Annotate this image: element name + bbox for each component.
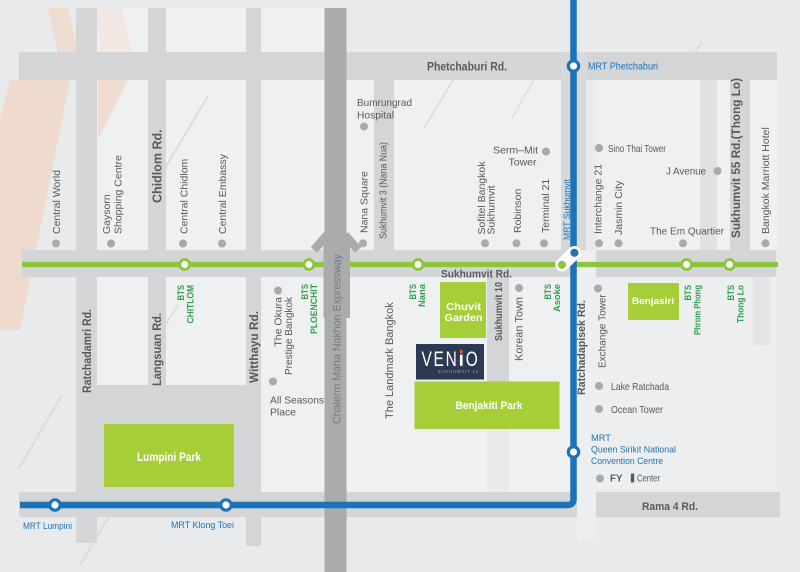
svg-text:Central Embassy: Central Embassy bbox=[217, 153, 229, 234]
svg-text:Jasmin City: Jasmin City bbox=[613, 180, 625, 235]
svg-text:Phrom Phong: Phrom Phong bbox=[693, 285, 703, 335]
svg-text:Tower: Tower bbox=[509, 157, 537, 169]
svg-text:Lake Ratchada: Lake Ratchada bbox=[611, 381, 669, 393]
svg-text:Nana Square: Nana Square bbox=[358, 171, 370, 233]
svg-text:Sino Thai Tower: Sino Thai Tower bbox=[608, 143, 666, 155]
svg-text:Sukhumvit 3 (Nana Nua): Sukhumvit 3 (Nana Nua) bbox=[378, 142, 390, 239]
svg-text:Ratchadamri Rd.: Ratchadamri Rd. bbox=[82, 309, 94, 393]
svg-text:MRT: MRT bbox=[591, 433, 611, 443]
svg-text:Prestige Bangkok: Prestige Bangkok bbox=[283, 296, 295, 375]
svg-text:Bangkok Marriott Hotel: Bangkok Marriott Hotel bbox=[760, 127, 772, 234]
svg-text:CHITLOM: CHITLOM bbox=[185, 285, 195, 324]
svg-text:All Seasons: All Seasons bbox=[270, 395, 324, 407]
svg-text:MRT Phetchaburi: MRT Phetchaburi bbox=[588, 62, 658, 73]
svg-text:Garden: Garden bbox=[445, 313, 483, 324]
svg-text:Benjakiti Park: Benjakiti Park bbox=[456, 400, 524, 412]
svg-text:Gaysorn: Gaysorn bbox=[101, 194, 113, 234]
svg-text:Queen Sirikit National: Queen Sirikit National bbox=[591, 445, 676, 455]
svg-text:MRT Sukhumvit: MRT Sukhumvit bbox=[562, 179, 573, 240]
svg-text:Ocean Tower: Ocean Tower bbox=[611, 404, 663, 416]
svg-text:Convention Centre: Convention Centre bbox=[591, 456, 663, 466]
svg-text:VEN: VEN bbox=[421, 346, 458, 370]
svg-text:Chuvit: Chuvit bbox=[446, 302, 482, 313]
svg-text:SUKHUMVIT 10: SUKHUMVIT 10 bbox=[438, 369, 479, 374]
svg-text:Rama 4 Rd.: Rama 4 Rd. bbox=[642, 501, 698, 513]
svg-text:MRT Klong Toei: MRT Klong Toei bbox=[171, 520, 234, 530]
svg-text:Lumpini Park: Lumpini Park bbox=[137, 452, 202, 464]
svg-text:Place: Place bbox=[270, 407, 296, 419]
svg-text:PLOENCHIT: PLOENCHIT bbox=[309, 284, 319, 334]
svg-text:Center: Center bbox=[637, 474, 661, 485]
svg-text:Sukhumvit Rd.: Sukhumvit Rd. bbox=[441, 269, 512, 281]
svg-text:Langsuan Rd.: Langsuan Rd. bbox=[152, 313, 164, 386]
svg-text:Benjasiri: Benjasiri bbox=[632, 296, 674, 307]
svg-text:Robinson: Robinson bbox=[512, 188, 524, 233]
svg-text:Central World: Central World bbox=[51, 170, 63, 234]
svg-text:Witthayu Rd.: Witthayu Rd. bbox=[249, 311, 261, 383]
svg-text:FY: FY bbox=[610, 474, 623, 485]
svg-text:The Landmark Bangkok: The Landmark Bangkok bbox=[384, 302, 396, 419]
svg-text:Bumrungrad: Bumrungrad bbox=[357, 97, 412, 109]
svg-text:Thong Lo: Thong Lo bbox=[736, 285, 746, 323]
svg-text:Chalerm Maha Nakhon Expressway: Chalerm Maha Nakhon Expressway bbox=[332, 254, 344, 424]
svg-text:O: O bbox=[466, 346, 478, 370]
svg-text:Terminal 21: Terminal 21 bbox=[540, 179, 552, 233]
svg-text:Sukhumvit: Sukhumvit bbox=[485, 185, 497, 234]
svg-text:Shopping Centre: Shopping Centre bbox=[112, 155, 124, 234]
svg-text:Hospital: Hospital bbox=[357, 110, 394, 122]
svg-text:MRT Lumpini: MRT Lumpini bbox=[23, 521, 72, 531]
svg-text:Serm–Mit: Serm–Mit bbox=[493, 145, 538, 157]
svg-text:Nana: Nana bbox=[417, 283, 427, 307]
svg-text:Asoke: Asoke bbox=[552, 284, 562, 312]
svg-text:Chidlom Rd.: Chidlom Rd. bbox=[151, 129, 165, 203]
svg-text:Ratchadapisek Rd.: Ratchadapisek Rd. bbox=[576, 300, 588, 395]
svg-text:Sukhumvit 55 Rd.(Thong Lo): Sukhumvit 55 Rd.(Thong Lo) bbox=[731, 78, 743, 238]
svg-text:J Avenue: J Avenue bbox=[666, 166, 706, 178]
svg-text:BTS: BTS bbox=[683, 285, 693, 301]
svg-text:BTS: BTS bbox=[726, 285, 736, 301]
svg-text:Exchange Tower: Exchange Tower bbox=[597, 294, 608, 368]
svg-text:Central Chidlom: Central Chidlom bbox=[178, 158, 190, 234]
svg-text:Sukhumvit 10: Sukhumvit 10 bbox=[493, 282, 505, 341]
svg-text:Korean Town: Korean Town bbox=[514, 297, 526, 361]
svg-text:The Em Quartier: The Em Quartier bbox=[650, 226, 724, 238]
svg-text:Phetchaburi Rd.: Phetchaburi Rd. bbox=[427, 60, 507, 74]
svg-text:Interchange 21: Interchange 21 bbox=[593, 164, 605, 234]
